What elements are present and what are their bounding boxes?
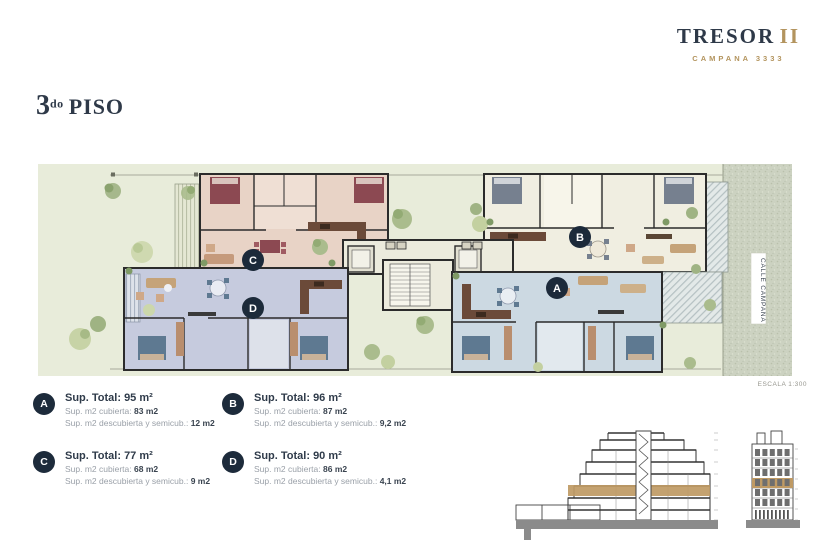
uncovered-area: Sup. m2 descubierta y semicub.: 12 m2 <box>65 418 215 428</box>
tree-icon <box>416 316 434 334</box>
floor-word: PISO <box>69 94 124 119</box>
tree-icon <box>143 304 155 316</box>
total-area: Sup. Total: 77 m² <box>65 450 210 462</box>
brand-title: TRESOR II <box>677 24 800 49</box>
tree-icon <box>181 186 195 200</box>
dining-table-icon <box>207 278 229 299</box>
brand-name: TRESOR <box>677 24 775 48</box>
total-area: Sup. Total: 96 m² <box>254 392 406 404</box>
dining-table-icon <box>497 286 519 307</box>
tree-icon <box>312 239 328 255</box>
unit-label-c: C <box>242 249 264 271</box>
uncovered-area: Sup. m2 descubierta y semicub.: 9,2 m2 <box>254 418 406 428</box>
legend-text: Sup. Total: 96 m² Sup. m2 cubierta: 87 m… <box>254 392 406 428</box>
unit-label-d: D <box>242 297 264 319</box>
covered-area: Sup. m2 cubierta: 68 m2 <box>65 464 210 474</box>
unit-b-area <box>484 174 728 272</box>
ground-line <box>516 520 718 540</box>
svg-text:A: A <box>553 283 561 295</box>
page-title: 3doPISO <box>36 90 124 122</box>
balcony-railing <box>755 510 789 519</box>
unit-badge-a: A <box>33 393 55 415</box>
ground-line <box>746 520 800 528</box>
street-label: CALLE CAMPANA <box>751 253 766 324</box>
floor-plan: C D B A CALLE CAMPANA <box>38 164 792 376</box>
brochure-page: { "header": { "brand": "TRESOR", "brand_… <box>0 0 828 559</box>
svg-text:D: D <box>249 303 257 315</box>
legend-item-a: A Sup. Total: 95 m² Sup. m2 cubierta: 83… <box>33 392 215 428</box>
scale-label: ESCALA 1:300 <box>758 381 807 388</box>
unit-badge-c: C <box>33 451 55 473</box>
covered-area: Sup. m2 cubierta: 87 m2 <box>254 406 406 416</box>
legend-item-c: C Sup. Total: 77 m² Sup. m2 cubierta: 68… <box>33 450 210 486</box>
legend-text: Sup. Total: 77 m² Sup. m2 cubierta: 68 m… <box>65 450 210 486</box>
total-area: Sup. Total: 90 m² <box>254 450 406 462</box>
unit-label-b: B <box>569 226 591 248</box>
total-area: Sup. Total: 95 m² <box>65 392 215 404</box>
brand-subtitle: CAMPANA 3333 <box>677 54 800 63</box>
dining-table-icon <box>587 239 609 260</box>
stairs-icon <box>390 264 430 306</box>
legend-text: Sup. Total: 95 m² Sup. m2 cubierta: 83 m… <box>65 392 215 428</box>
covered-area: Sup. m2 cubierta: 83 m2 <box>65 406 215 416</box>
floor-ordinal: do <box>50 97 64 111</box>
tree-icon <box>684 357 696 369</box>
legend-item-d: D Sup. Total: 90 m² Sup. m2 cubierta: 86… <box>222 450 406 486</box>
tree-icon <box>131 241 153 263</box>
tree-icon <box>691 264 701 274</box>
brand-suffix: II <box>780 24 800 48</box>
elevator-shaft <box>636 431 651 520</box>
uncovered-area: Sup. m2 descubierta y semicub.: 4,1 m2 <box>254 476 406 486</box>
tree-icon <box>686 207 698 219</box>
uncovered-area: Sup. m2 descubierta y semicub.: 9 m2 <box>65 476 210 486</box>
tree-icon <box>704 299 716 311</box>
svg-text:CALLE CAMPANA: CALLE CAMPANA <box>759 258 766 322</box>
tree-icon <box>392 209 412 229</box>
building-section-drawing <box>512 428 724 552</box>
brand-logo: TRESOR II CAMPANA 3333 <box>677 24 800 63</box>
building-elevation-drawing <box>744 428 802 538</box>
legend-item-b: B Sup. Total: 96 m² Sup. m2 cubierta: 87… <box>222 392 406 428</box>
svg-text:C: C <box>249 255 257 267</box>
covered-area: Sup. m2 cubierta: 86 m2 <box>254 464 406 474</box>
tree-icon <box>533 362 543 372</box>
unit-label-a: A <box>546 277 568 299</box>
svg-text:B: B <box>576 232 584 244</box>
unit-d-area <box>124 268 348 370</box>
unit-badge-d: D <box>222 451 244 473</box>
legend-text: Sup. Total: 90 m² Sup. m2 cubierta: 86 m… <box>254 450 406 486</box>
unit-badge-b: B <box>222 393 244 415</box>
floor-number: 3 <box>36 90 50 121</box>
